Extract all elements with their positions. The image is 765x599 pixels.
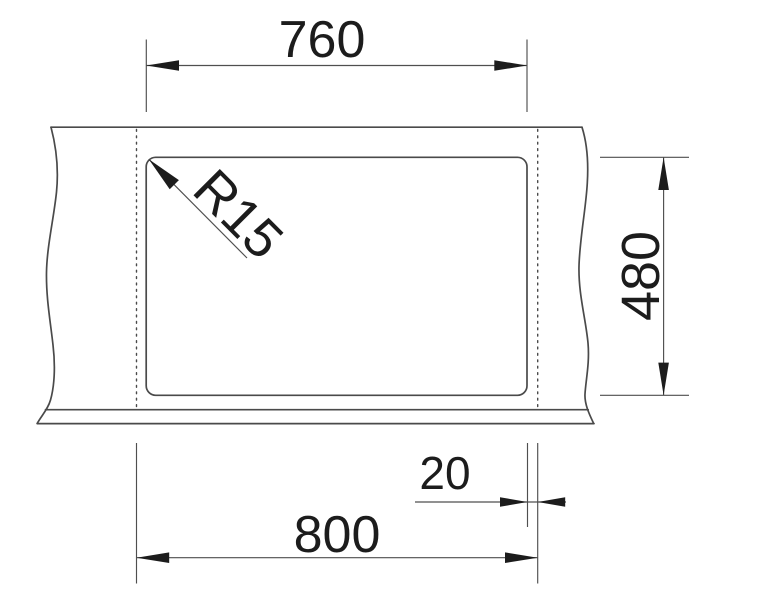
sink-cutout-drawing: 760 480 20 800 R15: [0, 0, 765, 599]
label-cutout-height: 480: [611, 231, 671, 321]
label-edge-offset: 20: [419, 447, 470, 499]
technical-drawing-canvas: 760 480 20 800 R15: [0, 0, 765, 599]
label-cutout-width: 760: [279, 11, 366, 69]
label-overall-width: 800: [294, 506, 381, 564]
